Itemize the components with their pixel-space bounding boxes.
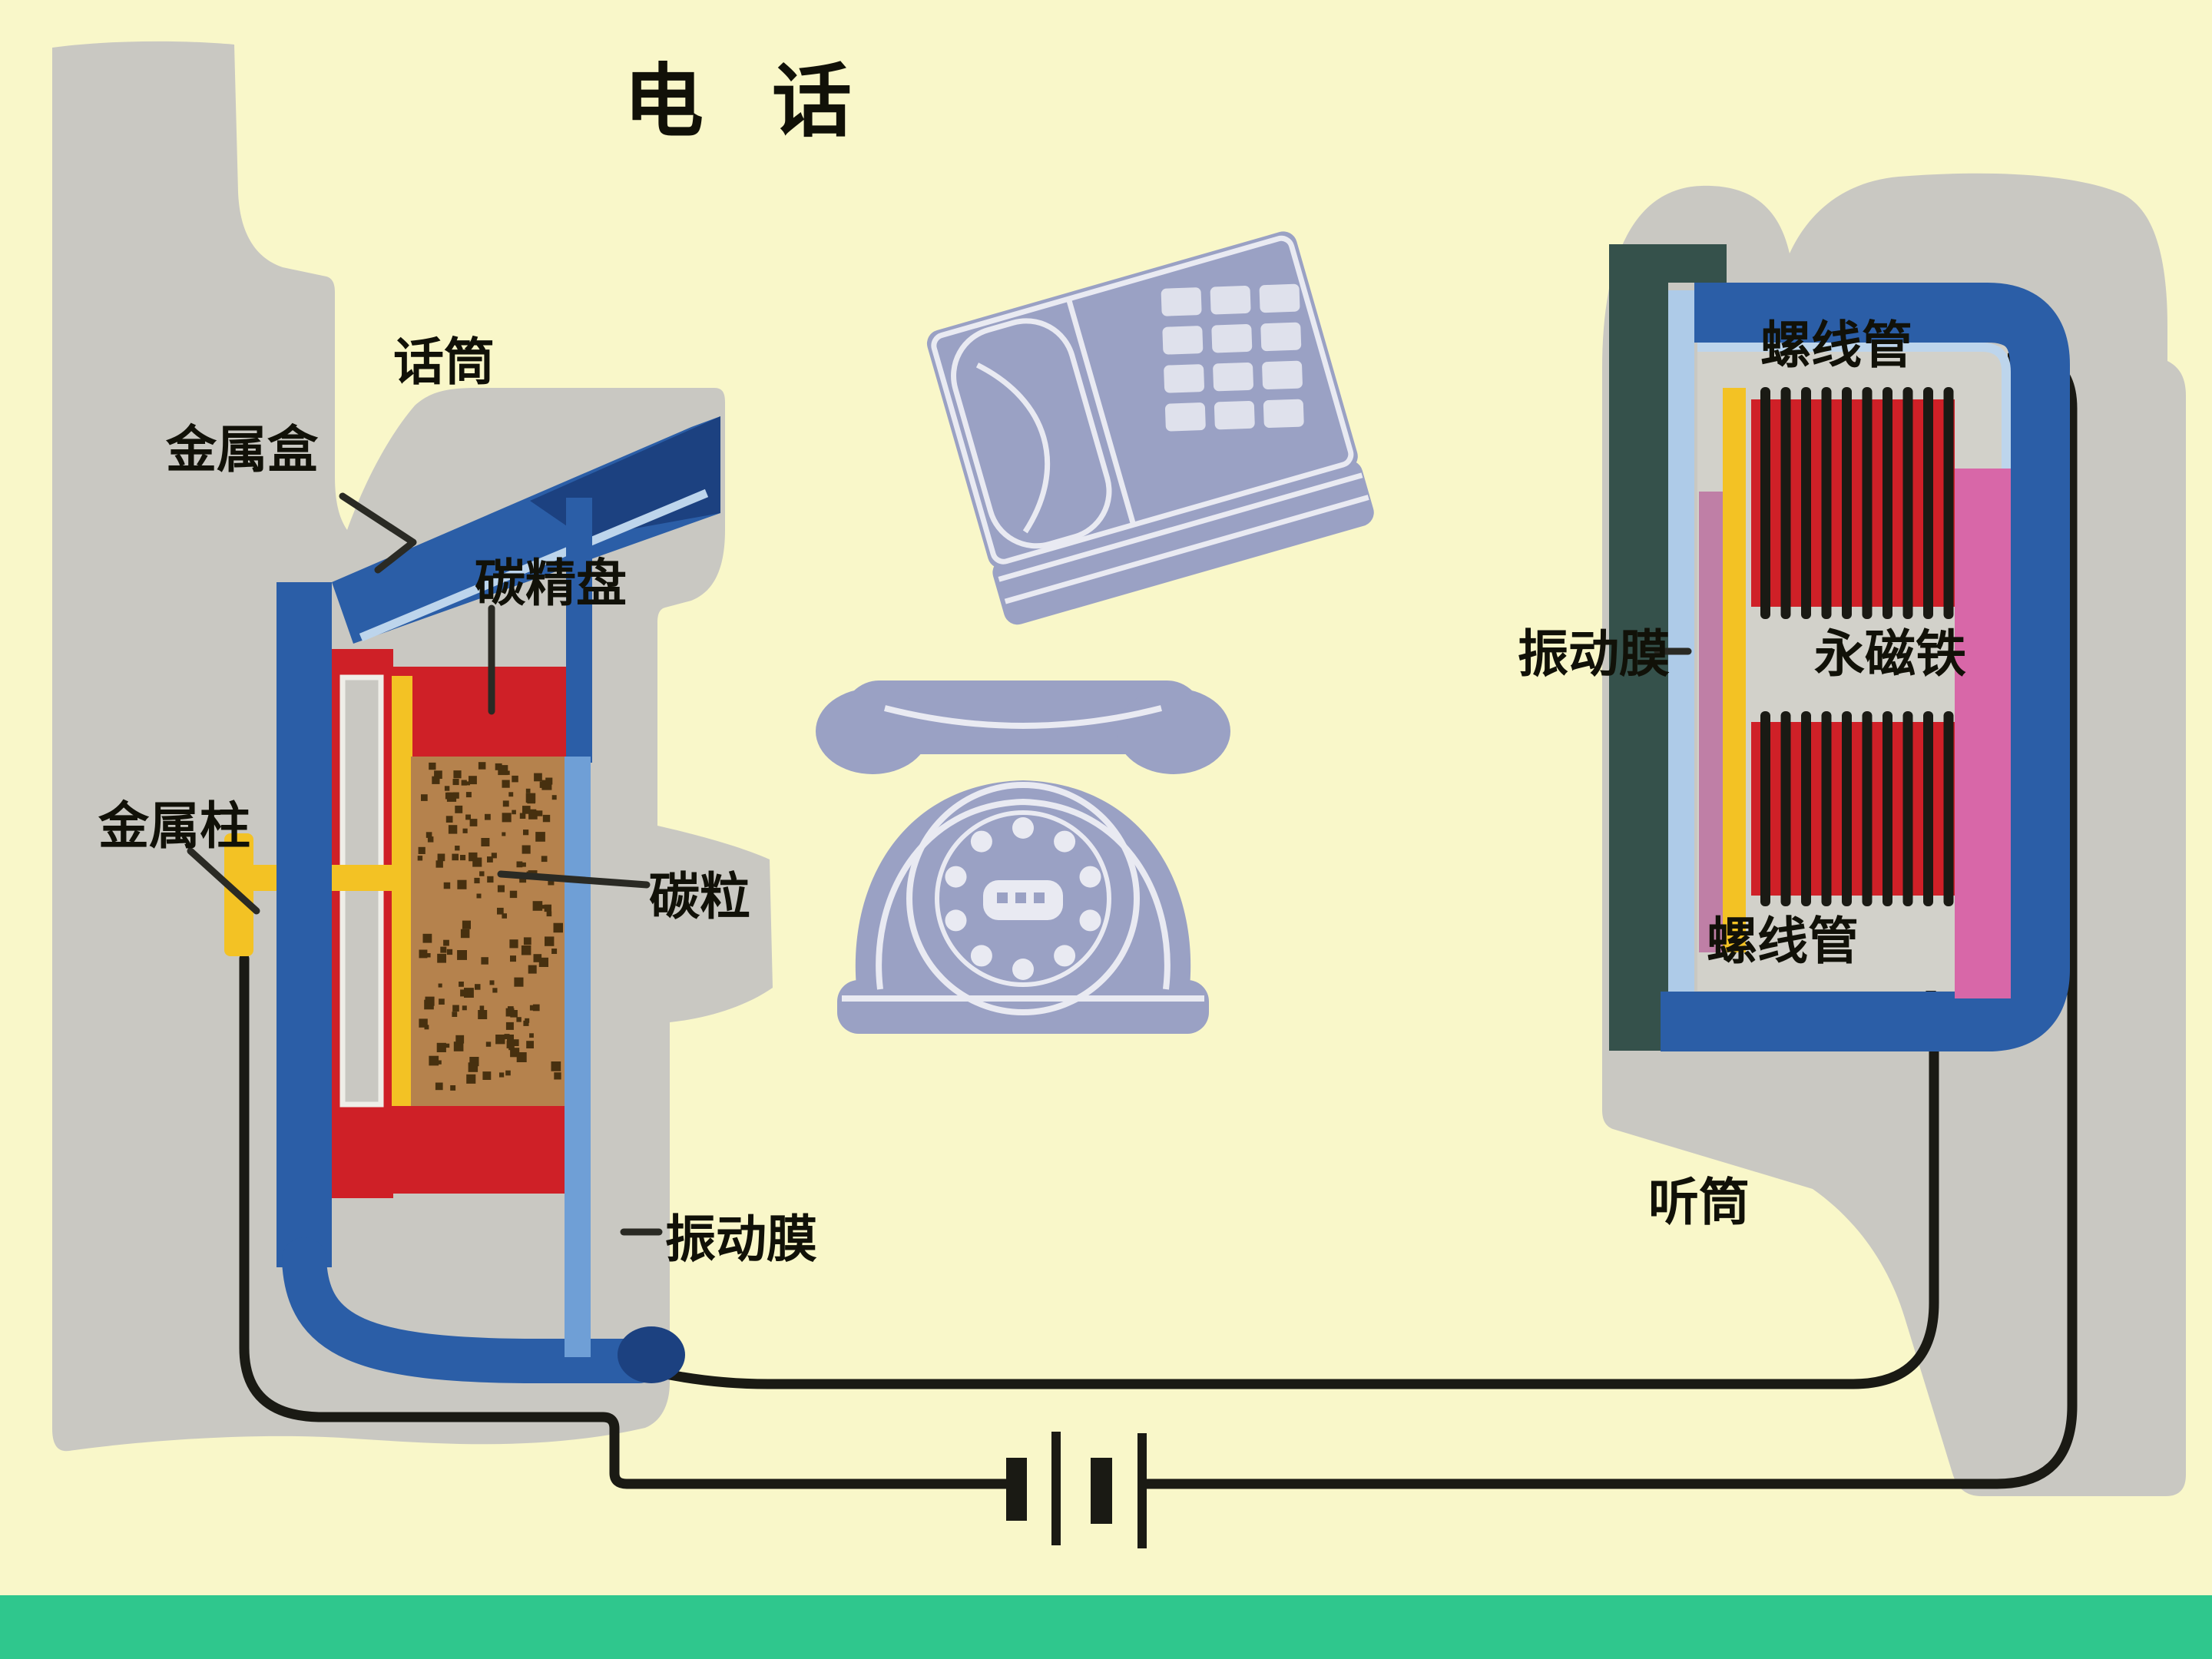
phone2-base: [837, 980, 1209, 1034]
phone2-ear-right: [1117, 688, 1230, 774]
telephone-principle-diagram: 电 话 话筒 金属盒 碳精盘 金属柱 碳粒 振动膜 螺线管 振动膜 永磁铁 螺线…: [0, 0, 2212, 1659]
microphone-diaphragm: [565, 757, 591, 1357]
receiver-diaphragm: [1668, 290, 1694, 995]
carbon-chamber: [411, 757, 568, 1106]
label-carbon-granules: 碳粒: [649, 868, 750, 925]
label-metal-post: 金属柱: [98, 797, 250, 854]
bobbin-mauve-strip: [1699, 492, 1725, 952]
phone2-dial-label-dots: [997, 892, 1045, 903]
page-title: 电 话: [624, 58, 875, 147]
label-diaphragm-right: 振动膜: [1518, 625, 1670, 682]
case-spout-tip: [618, 1326, 685, 1383]
footer-green-bar: [0, 1595, 2212, 1659]
permanent-magnet-bar: [1955, 469, 2011, 998]
battery-plate-long-2: [1137, 1433, 1147, 1548]
battery-plate-short-1: [1006, 1458, 1027, 1521]
label-receiver-section: 听筒: [1648, 1174, 1750, 1230]
phone2-ear-left: [816, 688, 929, 774]
label-permanent-magnet: 永磁铁: [1814, 625, 1966, 682]
label-solenoid-top: 螺线管: [1760, 316, 1912, 373]
battery-plate-long-1: [1051, 1432, 1061, 1545]
case-left-bar: [276, 582, 332, 1267]
case-mouth-edge: [566, 498, 592, 763]
label-carbon-disc: 碳精盘: [475, 555, 627, 611]
label-diaphragm-left: 振动膜: [665, 1210, 817, 1267]
bobbin-yellow-strip: [1723, 388, 1746, 952]
label-solenoid-bottom: 螺线管: [1707, 912, 1859, 969]
battery-plate-short-2: [1091, 1458, 1112, 1524]
label-microphone-section: 话筒: [393, 333, 495, 390]
label-metal-box: 金属盒: [165, 421, 319, 478]
carbon-disc-bottom-arm: [330, 1106, 568, 1194]
